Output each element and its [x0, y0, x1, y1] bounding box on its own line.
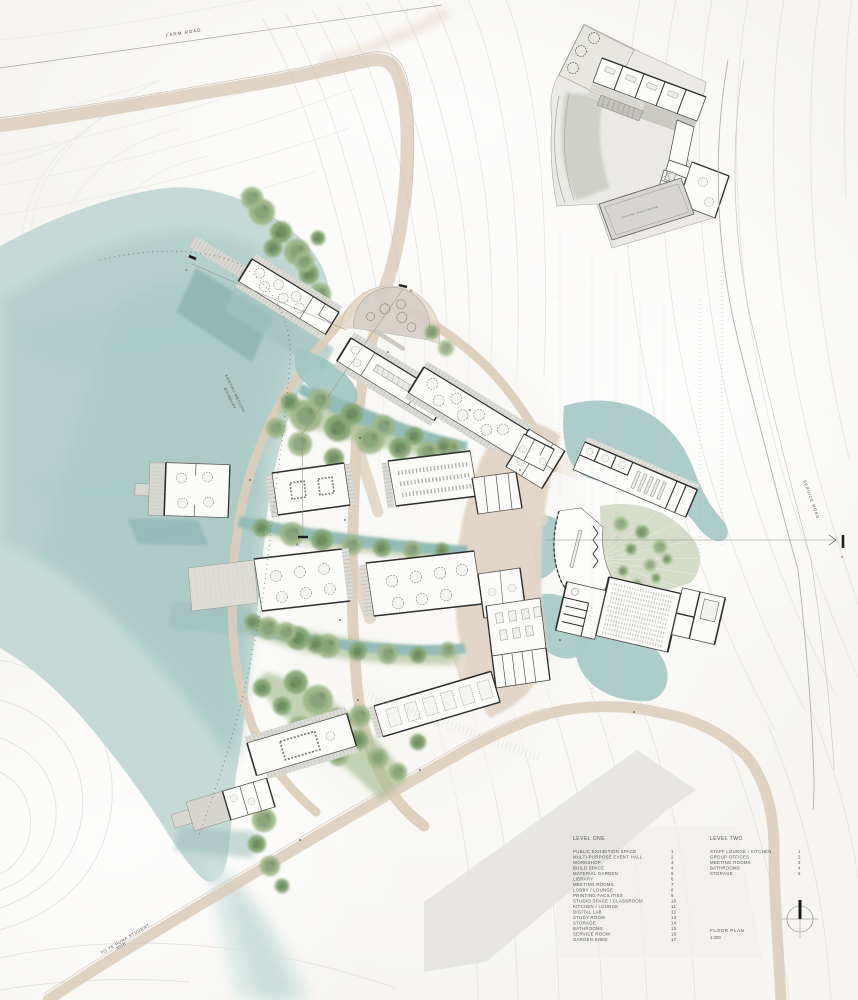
svg-text:8: 8 — [671, 888, 674, 893]
svg-text:2: 2 — [671, 855, 674, 860]
svg-text:3: 3 — [671, 860, 674, 865]
svg-text:13: 13 — [671, 915, 677, 920]
svg-text:GARDEN SHED: GARDEN SHED — [573, 937, 608, 942]
svg-text:STORAGE: STORAGE — [710, 871, 733, 876]
svg-text:12: 12 — [671, 910, 677, 915]
svg-text:1: 1 — [671, 849, 674, 854]
svg-text:LIBRARY: LIBRARY — [573, 877, 593, 882]
svg-text:B: B — [410, 288, 413, 293]
svg-text:FLOOR PLAN: FLOOR PLAN — [710, 928, 745, 934]
svg-text:16: 16 — [671, 932, 677, 937]
svg-text:7: 7 — [671, 882, 674, 887]
svg-text:MATERIAL GARDEN: MATERIAL GARDEN — [573, 871, 618, 876]
svg-text:11: 11 — [671, 904, 676, 909]
svg-text:STUDY ROOM: STUDY ROOM — [573, 915, 605, 920]
svg-text:SERVICE ROOM: SERVICE ROOM — [573, 932, 610, 937]
svg-text:PUBLIC EXHIBITION SPACE: PUBLIC EXHIBITION SPACE — [573, 849, 636, 854]
svg-text:5: 5 — [671, 871, 674, 876]
svg-text:STAFF LOUNGE / KITCHEN: STAFF LOUNGE / KITCHEN — [710, 849, 772, 854]
svg-text:PRINTING FACILITIES: PRINTING FACILITIES — [573, 893, 623, 898]
svg-text:2: 2 — [798, 855, 801, 860]
svg-text:STUDIO SPACE / CLASSROOM: STUDIO SPACE / CLASSROOM — [573, 899, 643, 904]
svg-text:DIGITAL LAB: DIGITAL LAB — [573, 910, 602, 915]
svg-text:6: 6 — [671, 877, 674, 882]
svg-text:STORAGE: STORAGE — [573, 921, 596, 926]
svg-text:GROUP OFFICES: GROUP OFFICES — [710, 855, 749, 860]
svg-text:MULTI-PURPOSE EVENT HALL: MULTI-PURPOSE EVENT HALL — [573, 855, 643, 860]
svg-text:A: A — [185, 267, 188, 272]
svg-text:17: 17 — [671, 937, 677, 942]
svg-text:14: 14 — [671, 921, 677, 926]
svg-text:15: 15 — [671, 926, 677, 931]
svg-text:4: 4 — [798, 866, 801, 871]
svg-text:LEVEL ONE: LEVEL ONE — [573, 836, 605, 842]
svg-text:LEVEL TWO: LEVEL TWO — [710, 836, 743, 842]
svg-text:3: 3 — [798, 860, 801, 865]
svg-text:4: 4 — [671, 866, 674, 871]
svg-text:10: 10 — [671, 899, 677, 904]
svg-text:WORKSHOP: WORKSHOP — [573, 860, 601, 865]
svg-text:MEETING ROOMS: MEETING ROOMS — [573, 882, 614, 887]
svg-text:B: B — [296, 542, 299, 547]
svg-text:1: 1 — [798, 849, 801, 854]
svg-text:BATHROOMS: BATHROOMS — [710, 866, 740, 871]
svg-text:9: 9 — [671, 893, 674, 898]
svg-text:MEETING ROOMS: MEETING ROOMS — [710, 860, 751, 865]
svg-text:1:200: 1:200 — [710, 935, 721, 940]
svg-text:BATHROOMS: BATHROOMS — [573, 926, 603, 931]
svg-text:5: 5 — [798, 871, 801, 876]
svg-text:BUILD SPACE: BUILD SPACE — [573, 866, 604, 871]
svg-text:KITCHEN / LOUNGE: KITCHEN / LOUNGE — [573, 904, 618, 909]
svg-text:LOBBY / LOUNGE: LOBBY / LOUNGE — [573, 888, 613, 893]
